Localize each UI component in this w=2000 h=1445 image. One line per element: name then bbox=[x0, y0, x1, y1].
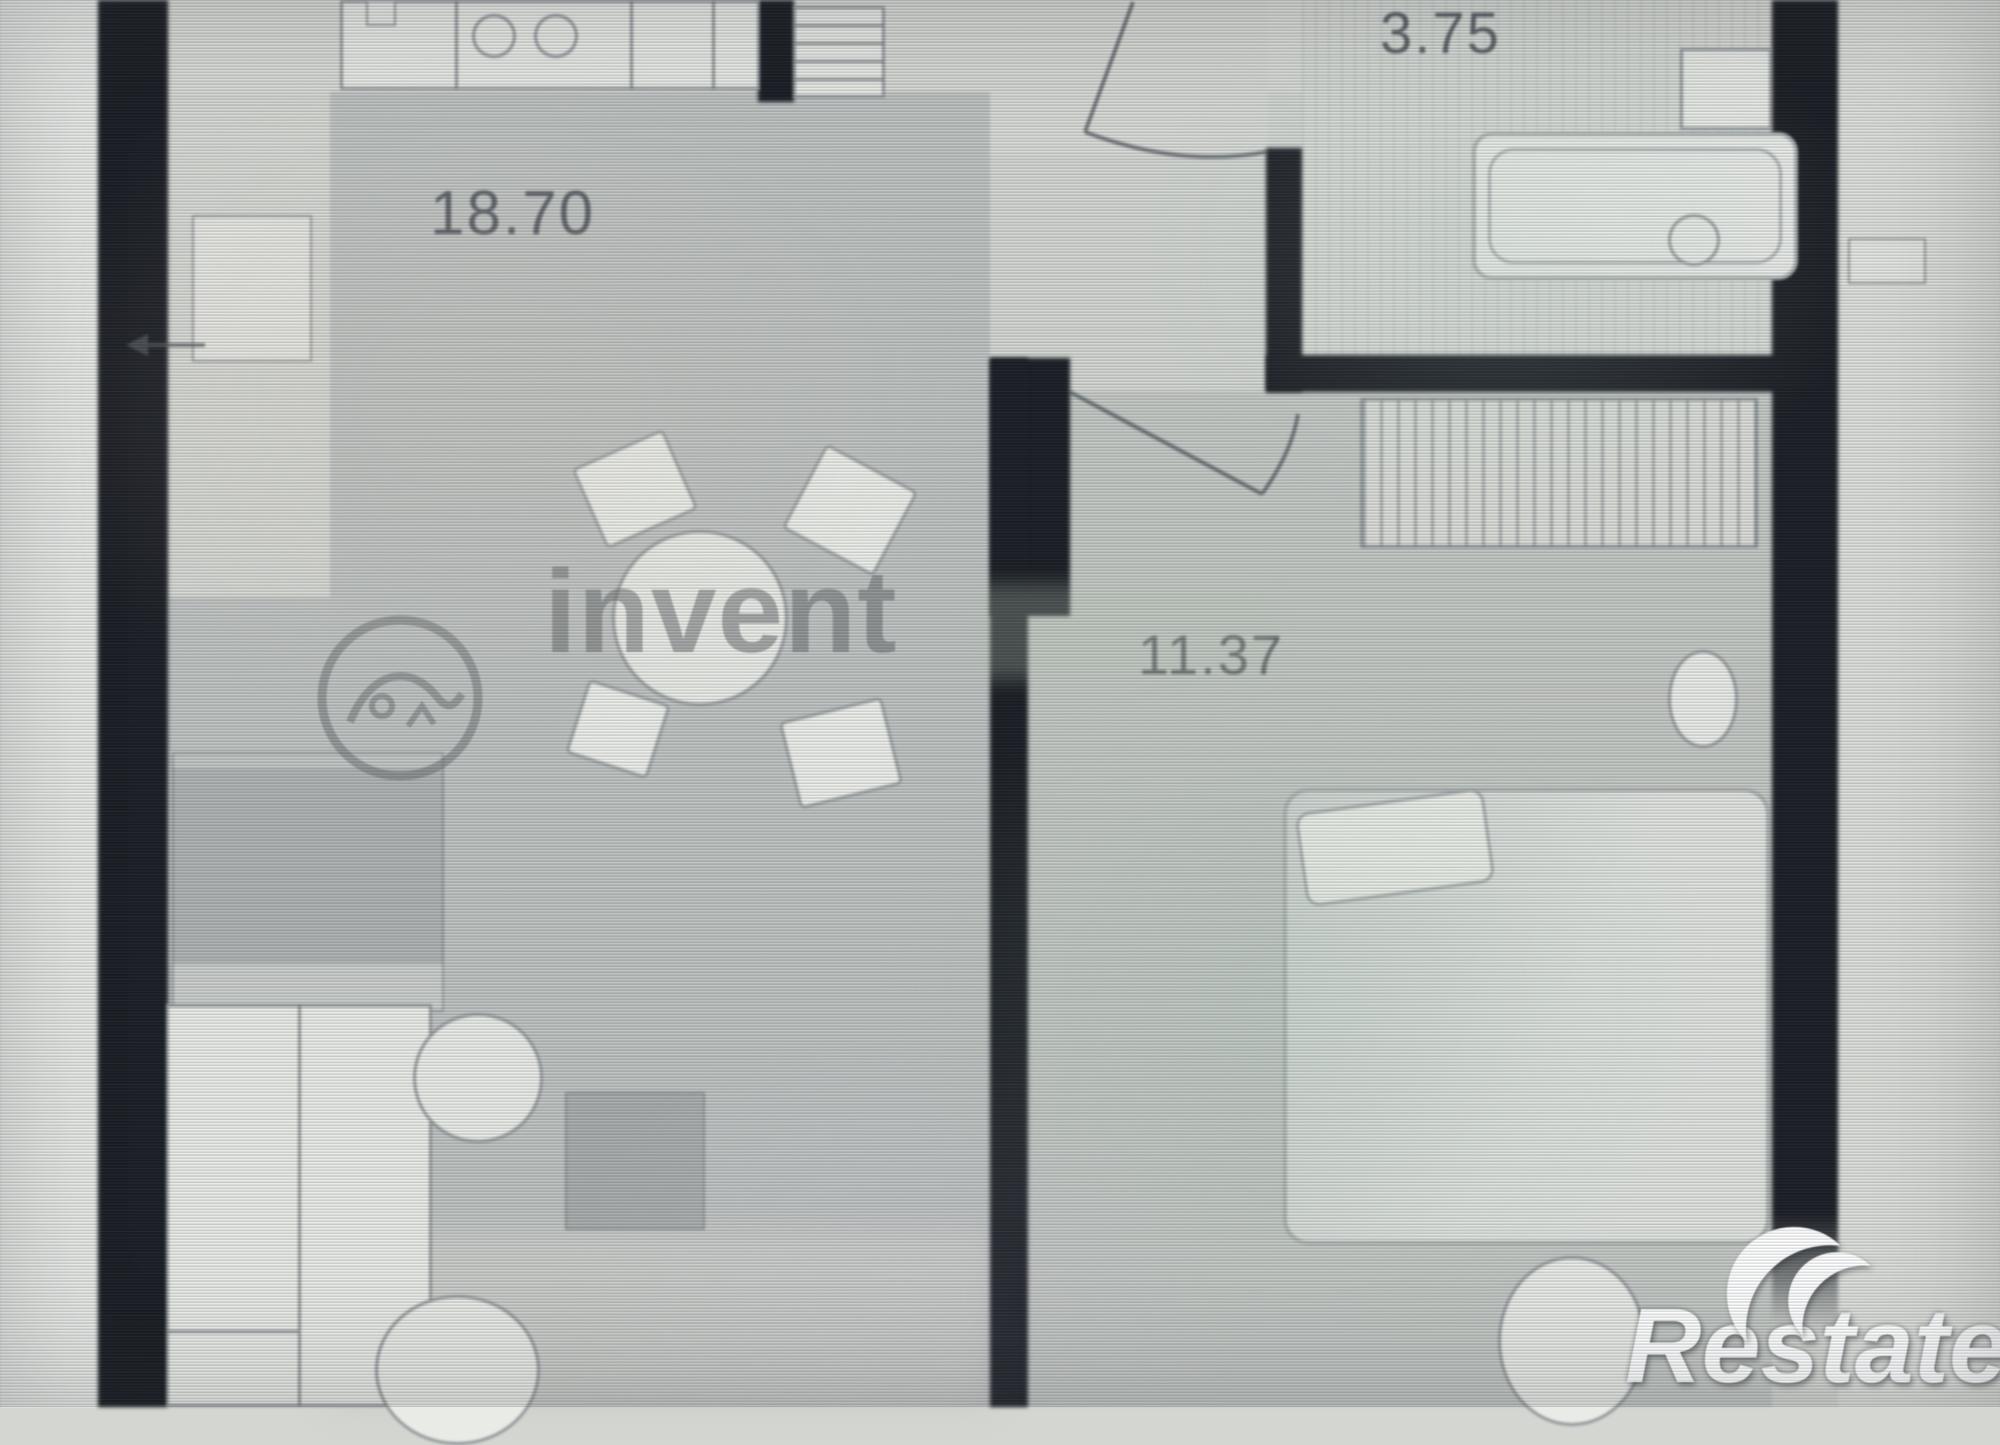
kitchen-counter-corner bbox=[366, 0, 396, 26]
bathtub-inner-rim bbox=[1488, 148, 1782, 264]
faucet-icon bbox=[1668, 214, 1720, 266]
hatched-wardrobe-icon bbox=[1360, 398, 1758, 548]
floor-plan-photo: 18.70 3.75 11.37 invent Restate bbox=[0, 0, 2000, 1407]
restate-logo: Restate bbox=[1625, 1286, 2000, 1407]
door-swing-icon bbox=[1085, 132, 1266, 157]
wardrobe-divider bbox=[166, 1330, 298, 1333]
stove-burners-icon bbox=[472, 14, 516, 58]
armchair-icon bbox=[375, 1295, 540, 1445]
door-swing-icon bbox=[1262, 414, 1298, 494]
counter-divider bbox=[630, 0, 633, 90]
watermark-ghost-word bbox=[968, 584, 1278, 680]
watermark-text: invent bbox=[544, 544, 898, 680]
door-swing-icon bbox=[1070, 392, 1262, 494]
entrance-arrow-icon bbox=[126, 334, 148, 356]
sofa-icon bbox=[172, 752, 444, 1012]
invent-circle-logo bbox=[312, 610, 488, 786]
wardrobe-divider bbox=[298, 1004, 301, 1407]
door-swing-icon bbox=[1085, 2, 1133, 132]
room-area-label-living: 18.70 bbox=[430, 178, 595, 249]
armchair-icon bbox=[413, 1013, 543, 1143]
sink-icon bbox=[1680, 48, 1772, 130]
counter-divider bbox=[455, 0, 458, 90]
double-crescent-icon bbox=[1741, 1224, 1911, 1354]
towel-rail-icon bbox=[1848, 238, 1926, 284]
nightstand-icon bbox=[1668, 650, 1738, 748]
bathtub-icon bbox=[1472, 132, 1798, 280]
floor-plan: 18.70 3.75 11.37 bbox=[0, 0, 2000, 1407]
room-area-label-bathroom: 3.75 bbox=[1380, 0, 1501, 67]
fridge-shelves-icon bbox=[793, 6, 885, 98]
counter-divider bbox=[712, 0, 715, 90]
stove-burners-icon bbox=[534, 14, 578, 58]
coffee-table-icon bbox=[565, 1092, 705, 1230]
pouf-icon bbox=[1498, 1256, 1646, 1426]
